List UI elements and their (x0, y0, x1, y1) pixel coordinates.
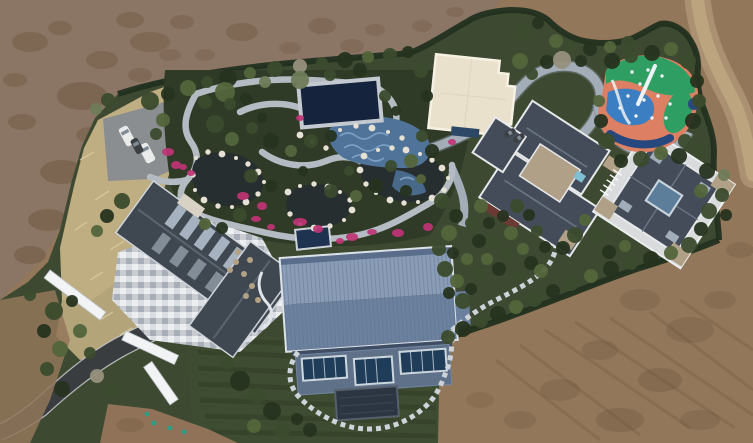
tree (565, 40, 577, 52)
tree (244, 67, 256, 79)
edging-rock (369, 125, 376, 132)
tree (455, 293, 471, 309)
tree (441, 225, 457, 241)
tree (141, 92, 159, 110)
tree (449, 209, 463, 223)
tree (621, 36, 635, 50)
tree (265, 180, 277, 192)
tree (90, 369, 104, 383)
edging-rock (338, 128, 342, 132)
tree (90, 103, 102, 115)
tree (246, 122, 258, 134)
tree (161, 87, 175, 101)
tree (526, 68, 538, 80)
tree (353, 63, 367, 77)
tree (104, 383, 120, 399)
tree (45, 302, 63, 320)
edging-rock (441, 187, 446, 192)
tree (267, 61, 283, 77)
edging-rock (285, 189, 292, 196)
tree (285, 145, 297, 157)
tree (539, 241, 551, 253)
edging-rock (399, 135, 404, 140)
tree (531, 225, 543, 237)
play-equipment-dot (664, 116, 667, 119)
edging-rock (215, 203, 220, 208)
tree (593, 95, 605, 107)
tree (344, 166, 354, 176)
tree (567, 227, 583, 243)
edging-rock (262, 180, 266, 184)
tree (198, 95, 212, 109)
tree (291, 71, 309, 89)
dirt-splotch (128, 68, 152, 82)
play-equipment-dot (630, 70, 633, 73)
tree (664, 246, 678, 260)
edging-rock (245, 161, 250, 166)
tree (644, 45, 660, 61)
edging-rock (219, 151, 226, 158)
tree (604, 53, 620, 69)
tree (556, 241, 570, 255)
garden-pebble (247, 257, 253, 263)
tree (664, 42, 678, 56)
tree (579, 214, 591, 226)
tree (465, 217, 477, 229)
dirt-splotch (86, 51, 118, 69)
tree (220, 356, 234, 370)
play-equipment-dot (618, 106, 621, 109)
edging-rock (297, 132, 304, 139)
tree (486, 234, 500, 248)
dirt-splotch (504, 411, 536, 429)
dirt-splotch (620, 289, 660, 311)
tree (274, 423, 290, 439)
tree (619, 240, 631, 252)
tree (549, 34, 563, 48)
paint-mark (145, 412, 150, 417)
tree (546, 284, 560, 298)
tree (385, 160, 397, 172)
tree (180, 80, 196, 96)
tree (437, 261, 453, 277)
tree (416, 130, 428, 142)
dirt-splotch (365, 24, 385, 36)
tree (694, 222, 708, 236)
tree (324, 69, 336, 81)
tree (54, 381, 70, 397)
tree (101, 93, 115, 107)
tree (199, 218, 211, 230)
tree (304, 134, 318, 148)
play-equipment-dot (668, 102, 671, 105)
dirt-splotch (12, 32, 48, 52)
tree (337, 52, 353, 68)
tree (720, 209, 732, 221)
tree (483, 217, 495, 229)
tree (100, 209, 114, 223)
tree (584, 269, 598, 283)
edging-rock (234, 156, 238, 160)
aerial-photo-estate (0, 0, 753, 443)
tree (432, 242, 446, 256)
play-equipment-dot (642, 98, 645, 101)
tree (492, 262, 506, 276)
tree (694, 184, 708, 198)
tree (91, 225, 103, 237)
tree (73, 324, 87, 338)
dirt-splotch (704, 291, 736, 309)
tree (461, 253, 473, 265)
tree (504, 226, 518, 240)
tree (501, 247, 513, 259)
tree (400, 185, 412, 197)
edging-rock (342, 218, 346, 222)
flower-patch (448, 139, 456, 145)
tree (671, 148, 687, 164)
tree (383, 48, 397, 62)
flower-patch (336, 238, 344, 244)
edging-rock (403, 147, 410, 154)
dirt-splotch (130, 32, 170, 52)
tree (84, 347, 96, 359)
play-equipment-dot (638, 82, 641, 85)
paint-mark (152, 421, 157, 426)
flower-patch (296, 115, 304, 121)
tree (590, 229, 604, 243)
tree (694, 144, 708, 158)
tree (516, 23, 532, 39)
tree (678, 134, 692, 148)
tree (369, 179, 383, 193)
garden-pebble (243, 293, 249, 299)
tree (614, 154, 628, 168)
tree (510, 199, 524, 213)
dirt-splotch (340, 39, 364, 53)
edging-rock (357, 167, 364, 174)
tree (583, 42, 597, 56)
tree (257, 113, 267, 123)
dirt-splotch (195, 49, 215, 61)
tree (421, 90, 433, 102)
tree (513, 271, 525, 283)
tree (718, 169, 730, 181)
edging-rock (311, 181, 316, 186)
tree (414, 64, 428, 78)
dirt-splotch (170, 15, 194, 29)
edging-rock (323, 145, 328, 150)
tree (509, 300, 523, 314)
paint-mark (168, 426, 173, 431)
edging-rock (194, 156, 198, 160)
tree (526, 291, 542, 307)
garden-pebble (235, 249, 241, 255)
tree (654, 146, 668, 160)
flower-patch (367, 229, 377, 235)
flower-patch (162, 148, 174, 156)
tree (447, 247, 459, 259)
tree (553, 51, 571, 69)
edging-rock (287, 211, 292, 216)
pool-pavilion-roof (300, 81, 379, 125)
tree (450, 274, 464, 288)
tree (690, 74, 704, 88)
flower-patch (423, 223, 433, 231)
tree (156, 113, 170, 127)
tree (681, 237, 697, 253)
tree (532, 17, 544, 29)
tree (391, 106, 401, 116)
tree (540, 55, 554, 69)
flower-patch (237, 192, 249, 200)
window-center (354, 356, 394, 385)
tree (490, 306, 506, 322)
dirt-splotch (116, 12, 144, 28)
tree (633, 151, 649, 167)
edging-rock (353, 123, 358, 128)
edging-rock (298, 184, 302, 188)
edging-rock (416, 200, 420, 204)
tree (298, 166, 308, 176)
tree (601, 134, 615, 148)
tree (465, 283, 477, 295)
tree (325, 130, 337, 142)
tree (66, 295, 78, 307)
tree (233, 208, 247, 222)
tree (474, 199, 488, 213)
tree (37, 324, 51, 338)
tree (474, 314, 488, 328)
garden-pebble (233, 259, 239, 265)
tree (263, 402, 281, 420)
tree (680, 53, 696, 69)
flower-patch (257, 202, 267, 210)
tree (470, 266, 484, 280)
tree (230, 371, 250, 391)
edging-rock (193, 188, 197, 192)
flower-patch (313, 225, 323, 233)
edging-rock (439, 165, 446, 172)
tree (114, 193, 130, 209)
edging-rock (255, 191, 260, 196)
tree (40, 362, 54, 376)
tree (497, 210, 509, 222)
tree (434, 193, 450, 209)
flower-patch (187, 170, 195, 176)
tree (715, 188, 729, 202)
edging-rock (201, 197, 208, 204)
tree (24, 289, 36, 301)
tree (643, 251, 659, 267)
dirt-splotch (279, 42, 301, 54)
tree (216, 222, 228, 234)
tree (512, 53, 528, 69)
tree (517, 243, 529, 255)
edging-rock (338, 190, 342, 194)
flower-patch (179, 164, 187, 170)
play-equipment-dot (626, 94, 629, 97)
tree (602, 245, 616, 259)
garden-pebble (249, 283, 255, 289)
tree (603, 261, 619, 277)
tree (455, 321, 471, 337)
tree (685, 113, 701, 129)
tree (247, 419, 261, 433)
edging-rock (418, 152, 422, 156)
dirt-splotch (48, 21, 72, 35)
tree (249, 388, 265, 404)
tree (441, 330, 455, 344)
edging-rock (429, 157, 434, 162)
tree (699, 163, 715, 179)
play-equipment-dot (656, 94, 659, 97)
flower-patch (251, 216, 261, 222)
dirt-splotch (3, 73, 27, 87)
tree (604, 41, 616, 53)
tree (425, 144, 439, 158)
dirt-splotch (446, 7, 464, 17)
play-equipment-dot (650, 116, 653, 119)
tree (594, 114, 608, 128)
tree (224, 98, 236, 110)
tree (350, 190, 362, 202)
edging-rock (327, 223, 332, 228)
tree (263, 133, 279, 149)
tree (523, 209, 535, 221)
tree (575, 55, 587, 67)
dirt-patch-shade (116, 418, 144, 432)
play-equipment-dot (660, 74, 663, 77)
tree (624, 256, 638, 270)
dirt-splotch (14, 246, 46, 264)
tree (240, 93, 252, 105)
tree (291, 413, 303, 425)
garden-pebble (241, 271, 247, 277)
tree (563, 275, 579, 291)
edging-rock (401, 200, 406, 205)
tree (303, 423, 317, 437)
flower-patch (346, 233, 358, 241)
tree (472, 234, 486, 248)
edging-rock (376, 148, 380, 152)
tree (244, 169, 258, 183)
tree (52, 341, 68, 357)
tree (206, 115, 224, 133)
paint-mark (182, 430, 187, 435)
tree (225, 132, 239, 146)
edging-rock (446, 176, 450, 180)
flower-patch (392, 229, 404, 237)
dirt-splotch (308, 18, 336, 34)
tree (481, 253, 493, 265)
garden-pebble (227, 267, 233, 273)
edging-rock (361, 153, 368, 160)
tree (404, 154, 418, 168)
scene-svg (0, 0, 753, 443)
tree (259, 76, 271, 88)
edging-rock (363, 181, 368, 186)
play-equipment-dot (646, 68, 649, 71)
tree (316, 57, 328, 69)
edging-rock (349, 207, 356, 214)
tree (416, 174, 426, 184)
tree (624, 49, 638, 63)
edging-rock (387, 197, 394, 204)
tree (701, 203, 717, 219)
dirt-splotch (8, 114, 36, 130)
dirt-splotch (726, 242, 753, 258)
tree (362, 51, 374, 63)
tree (324, 184, 338, 198)
edging-rock (205, 149, 210, 154)
tree (534, 264, 548, 278)
tree (379, 90, 391, 102)
flower-patch (267, 224, 275, 230)
tree (402, 46, 414, 58)
edging-rock (386, 130, 390, 134)
dirt-splotch (226, 23, 258, 41)
dirt-splotch (466, 392, 494, 408)
garden-pebble (255, 297, 261, 303)
dirt-splotch (159, 49, 181, 61)
play-equipment-dot (634, 114, 637, 117)
tree (150, 128, 162, 140)
edging-rock (389, 145, 394, 150)
edging-rock (230, 205, 234, 209)
dirt-splotch (412, 20, 432, 32)
flower-patch (293, 218, 307, 226)
tree (201, 76, 213, 88)
tree (692, 94, 706, 108)
tree (293, 59, 307, 73)
tree (443, 287, 455, 299)
